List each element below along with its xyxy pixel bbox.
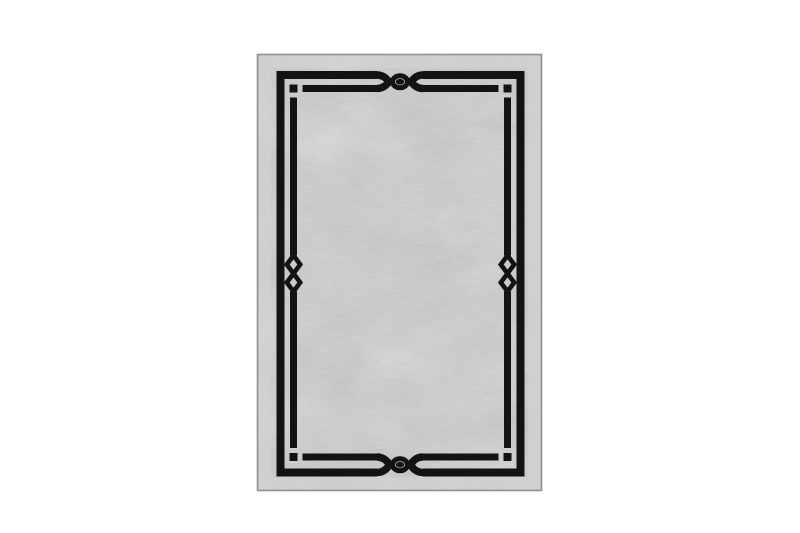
texture-grain [258,55,542,491]
knot-bottom-dot [396,462,404,468]
corner-square-bottom-left [290,453,298,461]
rug-texture [258,55,542,491]
corner-square-top-right [504,85,512,93]
rug-image [0,0,800,533]
corner-square-top-left [290,85,298,93]
corner-square-bottom-right [504,453,512,461]
product-photo-canvas [0,0,800,533]
knot-top-dot [396,79,404,85]
